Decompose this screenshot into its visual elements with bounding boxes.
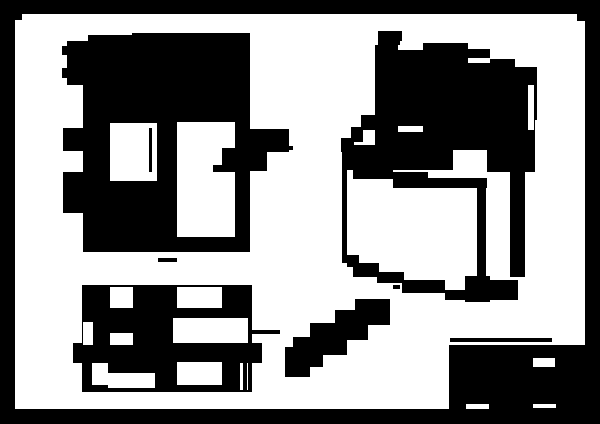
shape-rect: [466, 404, 489, 409]
title-block: [0, 0, 600, 424]
shape-rect: [533, 358, 555, 367]
shape-rect: [533, 404, 556, 408]
shape-rect: [450, 338, 552, 342]
drawing-sheet-canvas: [0, 0, 600, 424]
shape-rect: [449, 345, 600, 424]
